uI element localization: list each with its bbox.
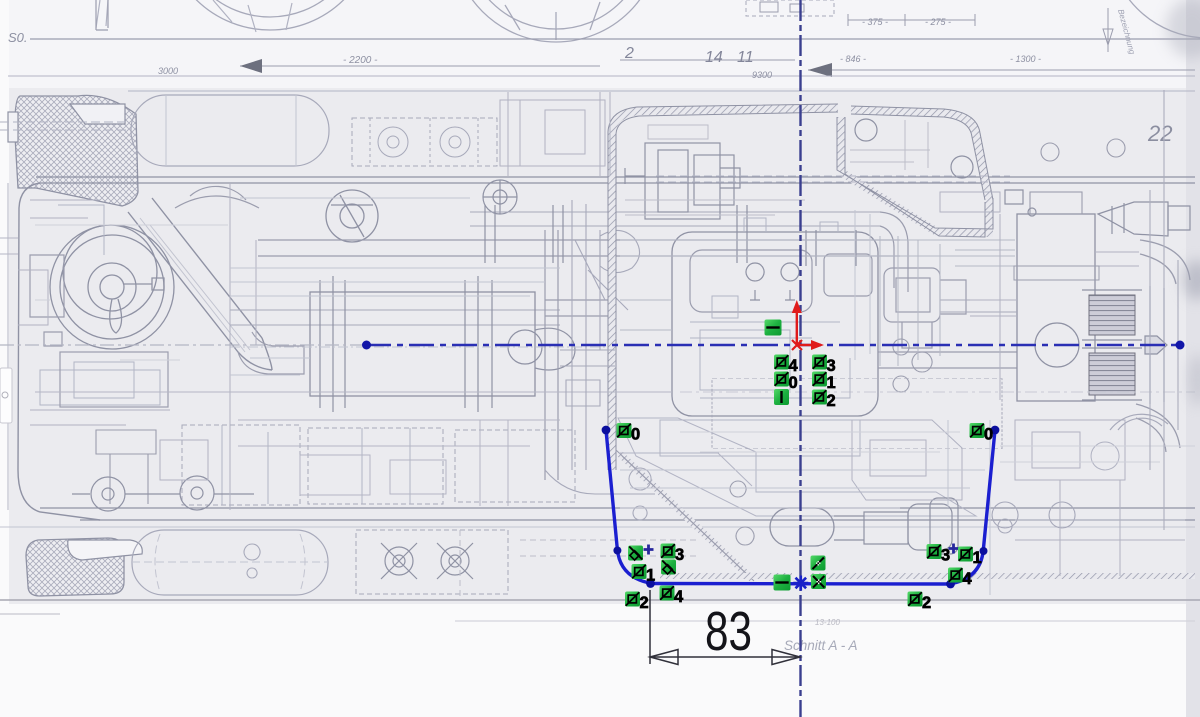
svg-text:- 375 -: - 375 - bbox=[862, 17, 888, 27]
svg-text:13-100: 13-100 bbox=[815, 618, 840, 627]
svg-text:1: 1 bbox=[827, 374, 836, 392]
svg-text:3: 3 bbox=[827, 357, 836, 375]
svg-text:- 1300 -: - 1300 - bbox=[1010, 54, 1041, 64]
svg-text:0: 0 bbox=[789, 374, 798, 392]
svg-text:0: 0 bbox=[984, 426, 993, 444]
svg-text:3: 3 bbox=[941, 547, 950, 565]
svg-text:2: 2 bbox=[624, 45, 634, 62]
svg-text:3: 3 bbox=[675, 546, 684, 564]
svg-text:83: 83 bbox=[705, 600, 752, 662]
svg-text:- 2200 -: - 2200 - bbox=[343, 55, 378, 66]
svg-text:2: 2 bbox=[922, 594, 931, 612]
svg-text:- 275 -: - 275 - bbox=[925, 17, 951, 27]
svg-text:9300: 9300 bbox=[752, 70, 772, 80]
svg-text:1: 1 bbox=[973, 549, 982, 567]
svg-text:14: 14 bbox=[705, 49, 723, 66]
svg-text:4: 4 bbox=[674, 588, 684, 606]
svg-text:- 846 -: - 846 - bbox=[840, 54, 866, 64]
svg-text:22: 22 bbox=[1147, 121, 1172, 146]
svg-text:1: 1 bbox=[646, 567, 655, 585]
svg-text:11: 11 bbox=[737, 49, 754, 66]
svg-text:2: 2 bbox=[640, 594, 649, 612]
svg-text:4: 4 bbox=[963, 570, 973, 588]
svg-text:S0.: S0. bbox=[8, 30, 28, 45]
svg-text:4: 4 bbox=[789, 357, 799, 375]
svg-text:0: 0 bbox=[631, 426, 640, 444]
svg-text:2: 2 bbox=[827, 392, 836, 410]
svg-text:Schnitt A - A: Schnitt A - A bbox=[784, 638, 858, 653]
svg-text:3000: 3000 bbox=[158, 66, 178, 76]
